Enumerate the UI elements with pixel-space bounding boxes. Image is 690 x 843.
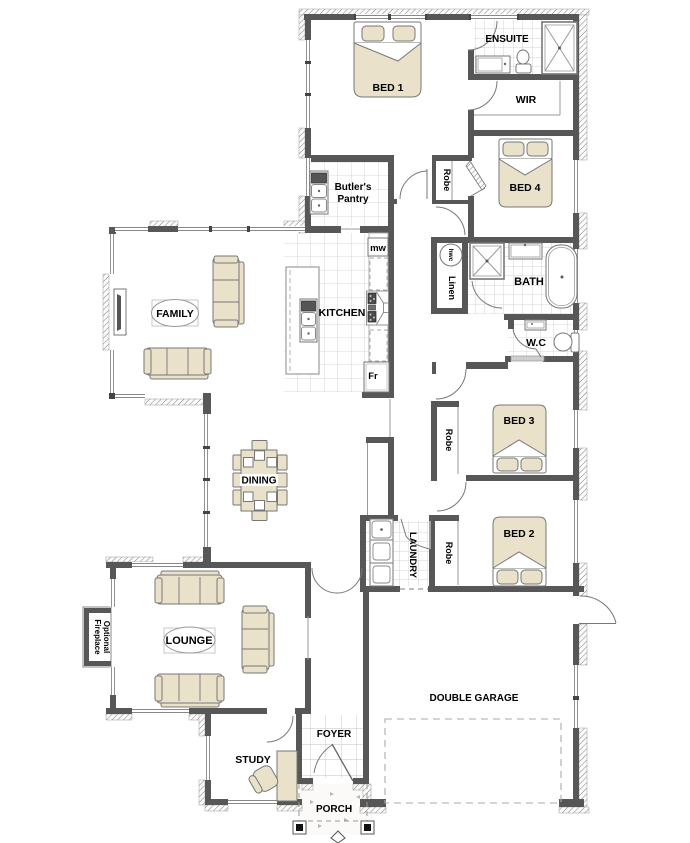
svg-text:Robe: Robe: [444, 542, 454, 565]
svg-text:BED 4: BED 4: [510, 182, 541, 194]
svg-text:ENSUITE: ENSUITE: [485, 34, 529, 45]
svg-text:Fr: Fr: [368, 371, 378, 382]
svg-text:STUDY: STUDY: [235, 754, 271, 766]
svg-text:Pantry: Pantry: [337, 194, 369, 205]
svg-text:Robe: Robe: [442, 169, 452, 192]
svg-text:Fireplace: Fireplace: [93, 619, 102, 655]
svg-text:BED 3: BED 3: [504, 415, 535, 427]
svg-text:LAUNDRY: LAUNDRY: [407, 532, 418, 579]
svg-text:W.C: W.C: [526, 337, 546, 349]
svg-text:WIR: WIR: [516, 94, 537, 106]
svg-text:BATH: BATH: [514, 276, 544, 288]
svg-text:BED 1: BED 1: [373, 82, 404, 94]
svg-text:DOUBLE GARAGE: DOUBLE GARAGE: [430, 693, 519, 704]
svg-text:Linen: Linen: [447, 276, 457, 300]
svg-text:Optional: Optional: [102, 621, 111, 653]
svg-text:LOUNGE: LOUNGE: [165, 635, 212, 647]
svg-text:BED 2: BED 2: [504, 528, 535, 540]
svg-text:Butler's: Butler's: [335, 182, 372, 193]
svg-text:FOYER: FOYER: [317, 729, 352, 740]
svg-text:DINING: DINING: [242, 476, 277, 487]
svg-text:PORCH: PORCH: [316, 804, 352, 815]
svg-text:KITCHEN: KITCHEN: [319, 307, 366, 319]
svg-text:FAMILY: FAMILY: [156, 308, 194, 320]
svg-text:mw: mw: [370, 243, 386, 254]
svg-text:hwc: hwc: [447, 249, 454, 262]
svg-text:Robe: Robe: [444, 429, 454, 452]
